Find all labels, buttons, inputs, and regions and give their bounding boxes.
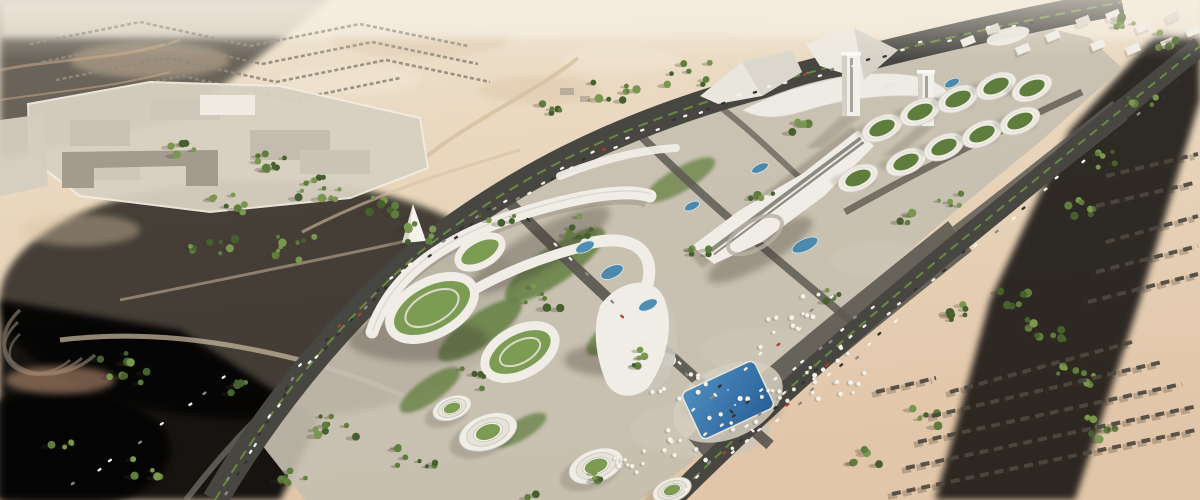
tree [1029,319,1038,328]
umbrella [672,453,676,457]
tree [530,283,536,289]
compound-building [200,95,255,115]
tree [550,106,555,111]
tree [1153,94,1159,100]
tree [539,100,546,107]
terrace-mound [5,366,115,394]
tree [598,477,603,482]
tree [318,194,327,203]
umbrella [719,412,723,416]
tree [909,405,917,413]
tree [477,371,483,377]
tree [949,317,954,322]
tree [143,368,151,376]
umbrella [785,399,789,403]
tree [344,423,349,428]
tree [624,84,629,89]
umbrella [626,463,629,466]
tree [218,240,223,245]
tree [532,490,540,498]
umbrella [759,345,763,349]
tree [1064,202,1072,210]
tree [262,150,269,157]
umbrella [731,427,735,431]
tree [680,60,687,67]
tree [295,257,302,264]
tree [352,433,360,441]
tree [371,196,376,201]
umbrella [791,323,796,328]
tree [301,238,306,243]
tree [377,200,386,209]
tree [188,244,193,249]
tree [758,195,764,201]
tree [313,426,319,432]
umbrella [805,313,809,317]
umbrella [730,421,733,424]
tree [1129,99,1136,106]
tree [1034,333,1040,339]
tree [405,239,411,245]
umbrella [731,447,734,450]
tree [1003,301,1011,309]
tree [328,414,334,420]
tree [131,472,139,480]
tree [606,97,611,102]
tree [272,165,276,169]
sand-mottle [20,214,140,246]
tree [590,80,596,86]
tree [632,85,640,93]
tree [836,292,841,297]
tree [875,460,883,468]
umbrella [836,359,840,363]
umbrella [613,457,616,460]
tree [1079,199,1085,205]
tree [823,298,830,305]
tree [700,82,705,87]
tree [1126,96,1130,100]
aerial-rendering [0,0,1200,500]
tower-two-cap [917,70,935,74]
tree [303,476,308,481]
tree [641,352,649,360]
tree [637,347,644,354]
umbrella [813,380,817,384]
tree [1081,370,1087,376]
umbrella [760,395,764,399]
tree [705,245,712,252]
tree [788,128,796,136]
compound-annex [0,114,48,196]
tree [231,235,240,244]
umbrella [642,449,646,453]
tree [322,186,327,191]
tree [227,389,234,396]
tree [68,439,74,445]
tree [206,239,213,246]
tree [402,454,408,460]
tree [150,468,155,473]
tree [934,421,943,430]
tree [48,441,56,449]
tree [231,193,236,198]
umbrella [641,462,644,465]
tree [1057,334,1065,342]
tree [337,187,341,191]
umbrella [811,314,816,319]
tree [664,81,672,89]
tree [191,147,196,152]
tree [432,460,438,466]
tree [1149,102,1154,107]
tree [262,164,271,173]
tree [963,312,968,317]
umbrella [817,293,821,297]
tree [153,472,161,480]
tree [121,372,128,379]
tree [1016,301,1022,307]
umbrella [816,396,821,401]
umbrella [696,376,700,380]
tower-one-facet [842,54,847,116]
tree [748,196,753,201]
tree [937,199,941,203]
tree [395,463,400,468]
tree [276,249,280,253]
tree [167,142,174,149]
tree [283,478,290,485]
tree [311,234,317,240]
umbrella [650,390,654,394]
tree [497,219,505,227]
tree [707,60,713,66]
umbrella [696,390,701,395]
umbrella [771,389,774,392]
umbrella [703,458,707,462]
tree [255,158,261,164]
umbrella [856,382,861,387]
umbrella [774,315,778,319]
tree [1096,165,1101,170]
pool-ripple [727,389,729,391]
compound-building [70,120,130,146]
tree [1100,153,1106,159]
tree [276,235,280,239]
umbrella [812,373,817,378]
umbrella [792,387,796,391]
tree [124,351,129,356]
umbrella [809,366,812,369]
tree [540,292,544,296]
umbrella [689,372,693,376]
tree [126,358,134,366]
tree [319,414,323,418]
tree [333,196,339,202]
tree [524,300,528,304]
tree [996,288,1004,296]
tree [425,237,432,244]
umbrella [662,448,666,452]
umbrella [852,391,855,394]
tree [412,221,418,227]
umbrella [662,387,666,391]
tree [130,456,136,462]
tree [173,150,181,158]
tree [224,204,229,209]
tree [106,373,113,380]
umbrella [835,380,839,384]
tree [851,459,858,466]
tree [1056,371,1060,375]
umbrella [666,428,670,432]
tree [241,201,248,208]
umbrella [694,447,698,451]
umbrella [617,463,622,468]
tree [556,304,564,312]
tree [825,288,830,293]
tree [365,208,374,217]
tree [565,230,573,238]
tree [569,224,576,231]
tree [394,445,402,453]
umbrella [848,380,853,385]
umbrella [766,317,770,321]
tree [234,379,238,383]
tree [1111,150,1115,154]
tree [1025,317,1031,323]
tree [404,223,412,231]
tree [486,217,492,223]
tree [1089,415,1097,423]
tree [632,363,637,368]
ruin [560,88,574,95]
tree [595,94,604,103]
compound-building [300,150,370,174]
tree [861,446,868,453]
umbrella [738,396,743,401]
umbrella [846,352,850,356]
tree [794,119,801,126]
tree [282,156,287,161]
tree [234,204,242,212]
umbrella [745,397,750,402]
umbrella [821,367,825,371]
tree [908,209,917,218]
umbrella [838,392,843,397]
tree [771,191,776,196]
tree [947,199,953,205]
tree [957,203,962,208]
umbrella [778,396,782,400]
scene-root [0,0,1200,500]
umbrella [624,458,627,461]
tree [278,239,286,247]
tree [429,226,436,233]
tree [417,459,421,463]
tree [669,71,674,76]
tree [226,244,234,252]
tree [218,251,222,255]
tree [209,195,216,202]
tree [138,380,144,386]
tree [589,227,594,232]
tree [479,385,485,391]
tree [958,190,964,196]
pool-ripple [734,404,736,406]
umbrella [678,439,681,442]
umbrella [677,397,681,401]
umbrella [789,315,794,320]
tree [1057,326,1065,334]
tree [1095,151,1100,156]
tree [584,233,590,239]
tree [295,193,303,201]
tree [303,180,308,185]
tree [1020,291,1027,298]
umbrella [862,371,866,375]
tree [1095,435,1103,443]
umbrella [801,294,806,299]
tree [946,308,955,317]
tree [686,69,691,74]
tree [460,366,465,371]
tree [637,356,642,361]
tree [688,247,693,252]
umbrella [754,420,758,424]
tree [962,306,968,312]
umbrella [668,437,673,442]
umbrella [812,377,815,380]
tree [322,422,329,429]
umbrella [772,331,775,334]
tree [1072,367,1079,374]
tree [1112,160,1118,166]
umbrella [777,389,781,393]
tree [1070,212,1078,220]
tree [97,356,104,363]
umbrella [659,389,663,393]
tree [558,108,563,113]
atmosphere-haze [0,0,1200,60]
tree [287,468,294,475]
tree [387,207,393,213]
tree [576,235,581,240]
umbrella [630,464,634,468]
tree [591,470,597,476]
umbrella [635,470,639,474]
tree [619,96,626,103]
umbrella [805,371,808,374]
tree [512,214,516,218]
tree [905,220,910,225]
tree [321,175,326,180]
tree [179,140,187,148]
tree [577,213,583,219]
umbrella [704,382,708,386]
tree [300,189,304,193]
umbrella [707,416,711,420]
tree [542,296,547,301]
tree [509,218,515,224]
